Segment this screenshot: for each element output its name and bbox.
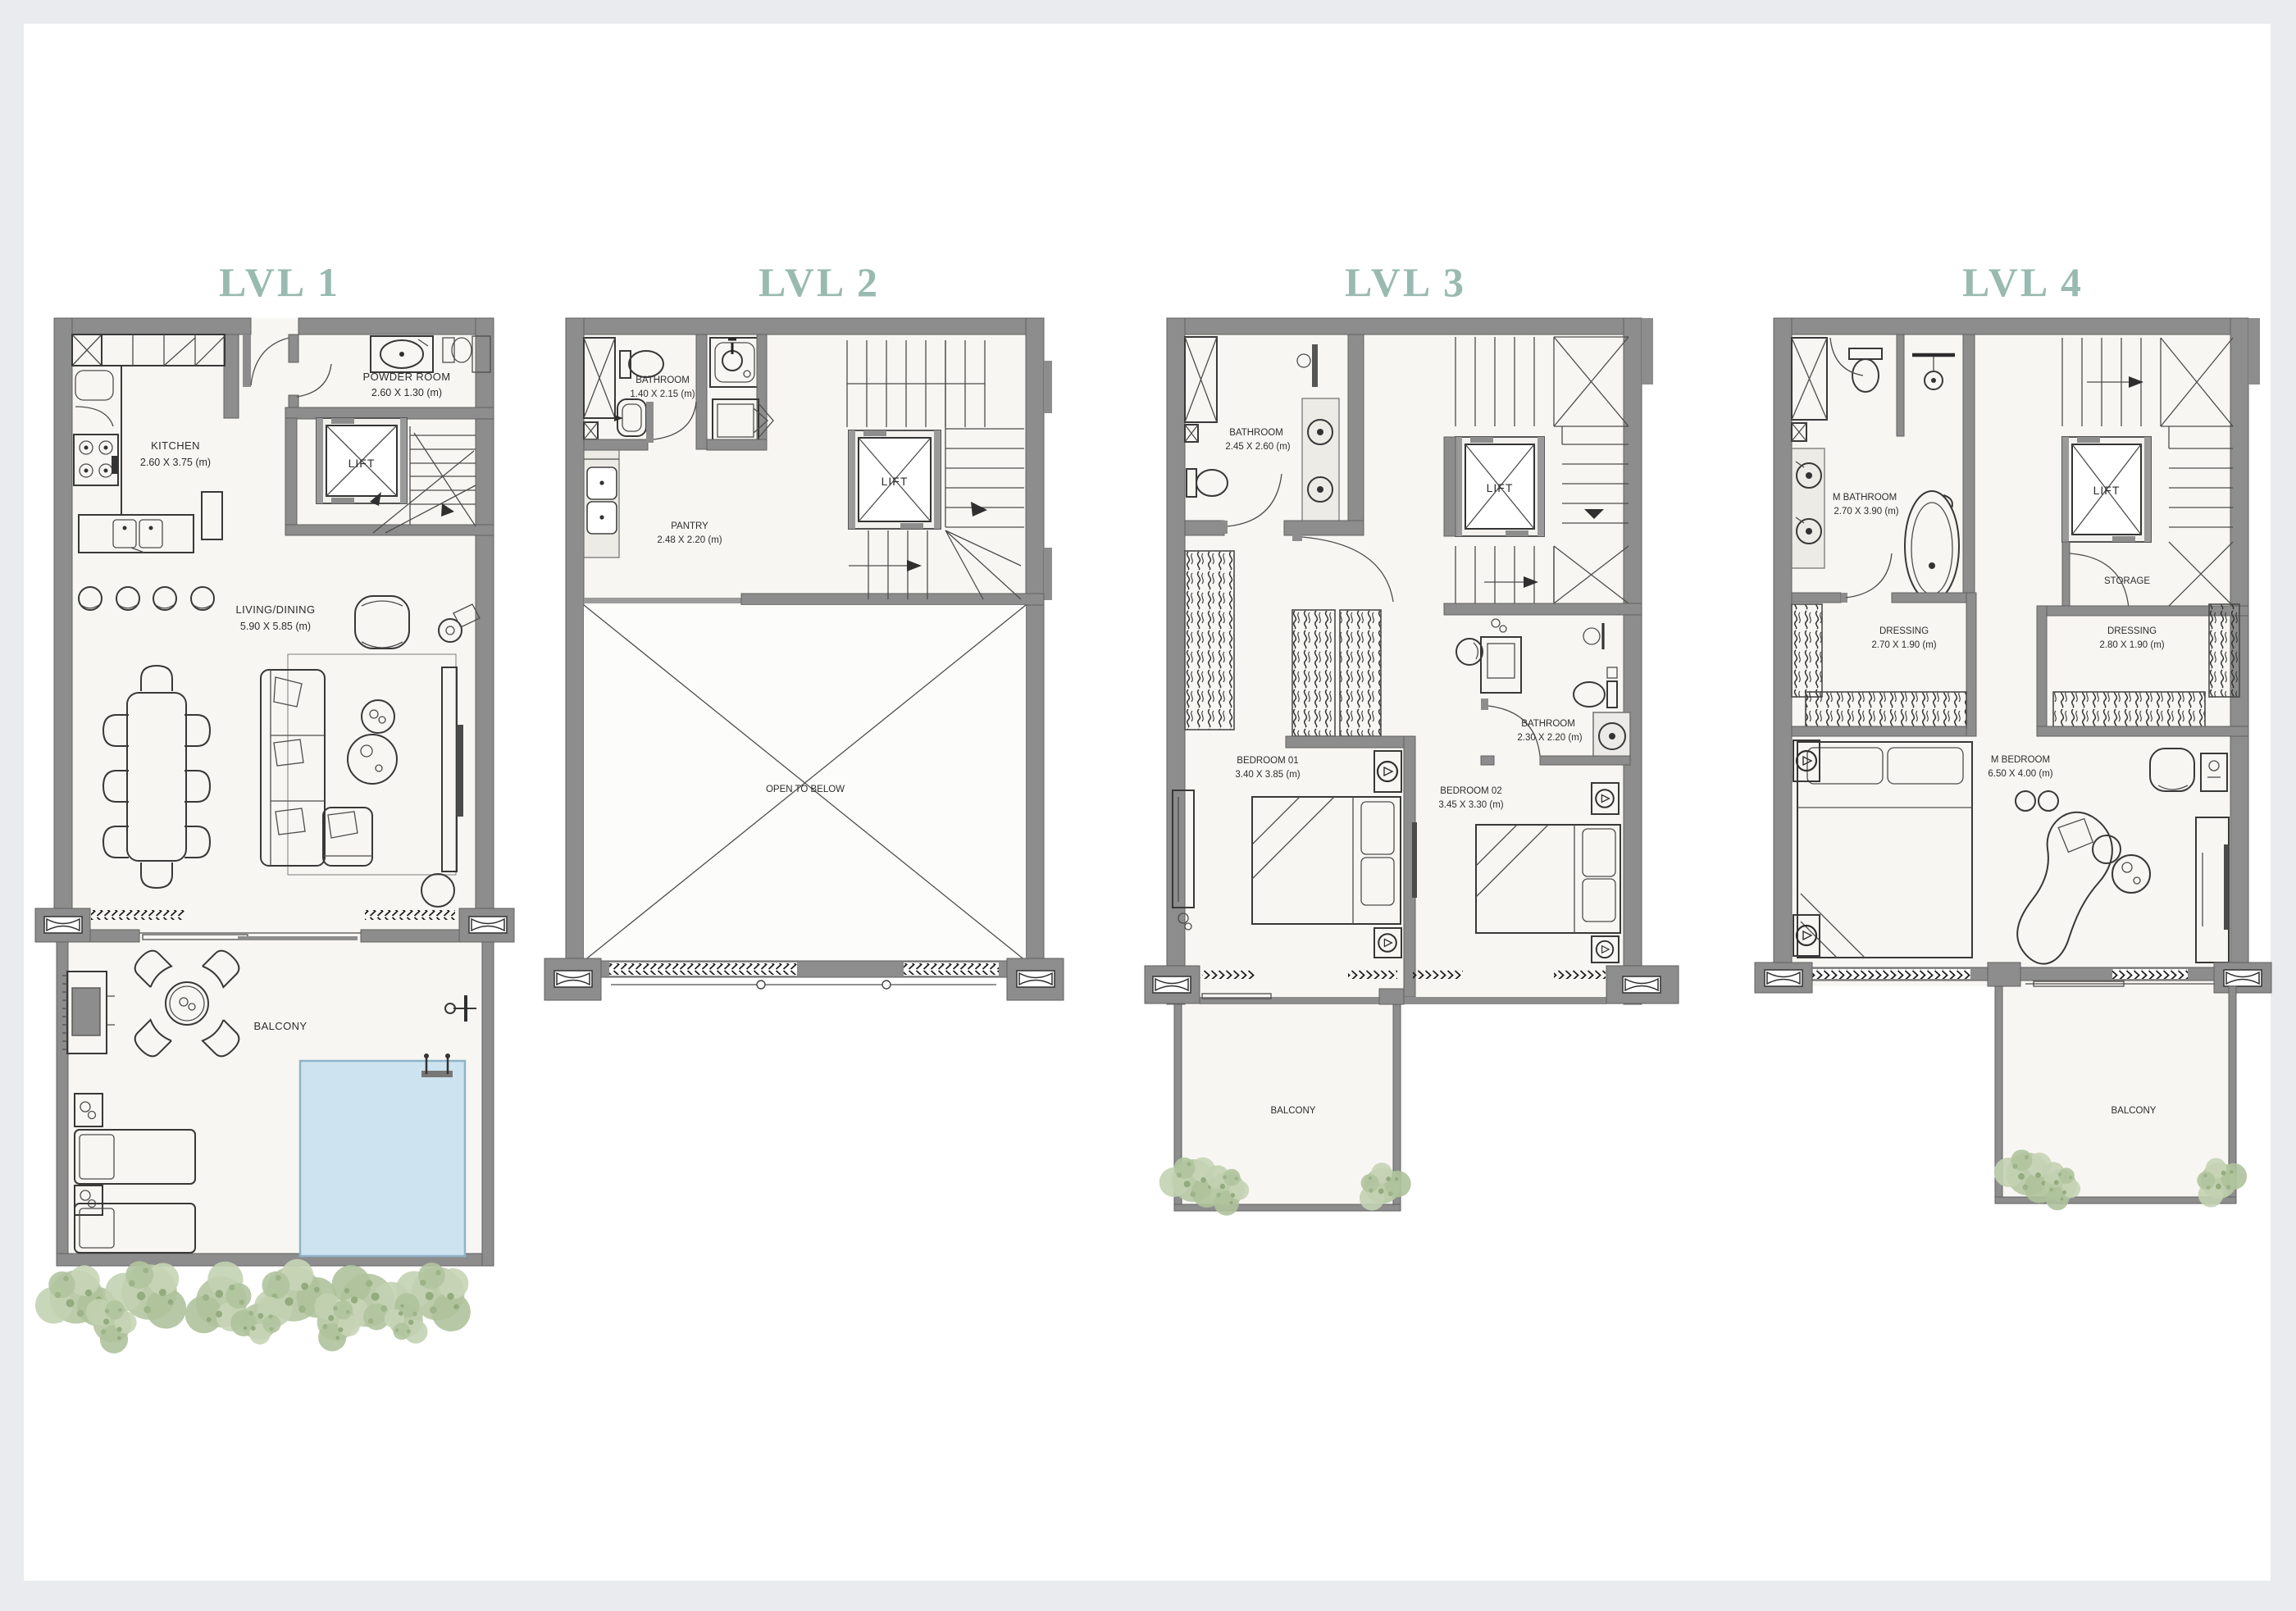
svg-text:3.45 X 3.30 (m): 3.45 X 3.30 (m) — [1438, 800, 1503, 810]
svg-text:2.70 X 3.90 (m): 2.70 X 3.90 (m) — [1834, 507, 1898, 517]
svg-text:LIFT: LIFT — [2093, 484, 2121, 497]
svg-text:BALCONY: BALCONY — [254, 1020, 307, 1032]
svg-text:3.40 X 3.85 (m): 3.40 X 3.85 (m) — [1235, 770, 1300, 780]
svg-text:DRESSING: DRESSING — [1879, 626, 1929, 636]
svg-text:BALCONY: BALCONY — [1271, 1106, 1316, 1116]
svg-text:LIFT: LIFT — [1487, 481, 1514, 494]
svg-text:BEDROOM 02: BEDROOM 02 — [1440, 786, 1501, 796]
svg-text:2.60 X 1.30 (m): 2.60 X 1.30 (m) — [371, 387, 442, 398]
svg-text:LVL 1: LVL 1 — [219, 259, 340, 305]
svg-text:STORAGE: STORAGE — [2104, 576, 2150, 586]
svg-text:BATHROOM: BATHROOM — [1229, 428, 1283, 438]
svg-text:BATHROOM: BATHROOM — [1521, 719, 1575, 729]
svg-text:2.70 X 1.90 (m): 2.70 X 1.90 (m) — [1871, 640, 1936, 650]
svg-text:2.80 X 1.90 (m): 2.80 X 1.90 (m) — [2099, 640, 2164, 650]
svg-text:1.40 X 2.15 (m): 1.40 X 2.15 (m) — [630, 389, 695, 399]
svg-text:M BEDROOM: M BEDROOM — [1991, 755, 2050, 765]
svg-text:POWDER ROOM: POWDER ROOM — [363, 371, 451, 383]
svg-text:LVL 3: LVL 3 — [1345, 259, 1466, 305]
svg-text:2.45 X 2.60 (m): 2.45 X 2.60 (m) — [1225, 442, 1290, 452]
svg-text:LIVING/DINING: LIVING/DINING — [236, 603, 316, 616]
svg-text:M BATHROOM: M BATHROOM — [1833, 493, 1897, 503]
svg-text:KITCHEN: KITCHEN — [151, 439, 200, 452]
svg-text:DRESSING: DRESSING — [2107, 626, 2157, 636]
svg-text:5.90 X 5.85 (m): 5.90 X 5.85 (m) — [240, 621, 311, 632]
svg-text:BATHROOM: BATHROOM — [635, 375, 690, 385]
svg-text:BALCONY: BALCONY — [2111, 1106, 2157, 1116]
svg-text:LIFT: LIFT — [881, 475, 909, 488]
svg-text:LVL 2: LVL 2 — [758, 259, 880, 305]
svg-text:6.50 X 4.00 (m): 6.50 X 4.00 (m) — [1988, 769, 2052, 779]
svg-text:PANTRY: PANTRY — [671, 521, 708, 531]
svg-text:LIFT: LIFT — [348, 457, 376, 470]
svg-text:OPEN TO BELOW: OPEN TO BELOW — [766, 785, 845, 794]
svg-text:BEDROOM 01: BEDROOM 01 — [1237, 756, 1298, 766]
svg-text:2.30 X 2.20 (m): 2.30 X 2.20 (m) — [1517, 733, 1582, 743]
svg-text:2.60 X 3.75 (m): 2.60 X 3.75 (m) — [140, 457, 211, 468]
svg-text:LVL 4: LVL 4 — [1962, 259, 2084, 305]
svg-text:2.48 X 2.20 (m): 2.48 X 2.20 (m) — [657, 535, 722, 545]
